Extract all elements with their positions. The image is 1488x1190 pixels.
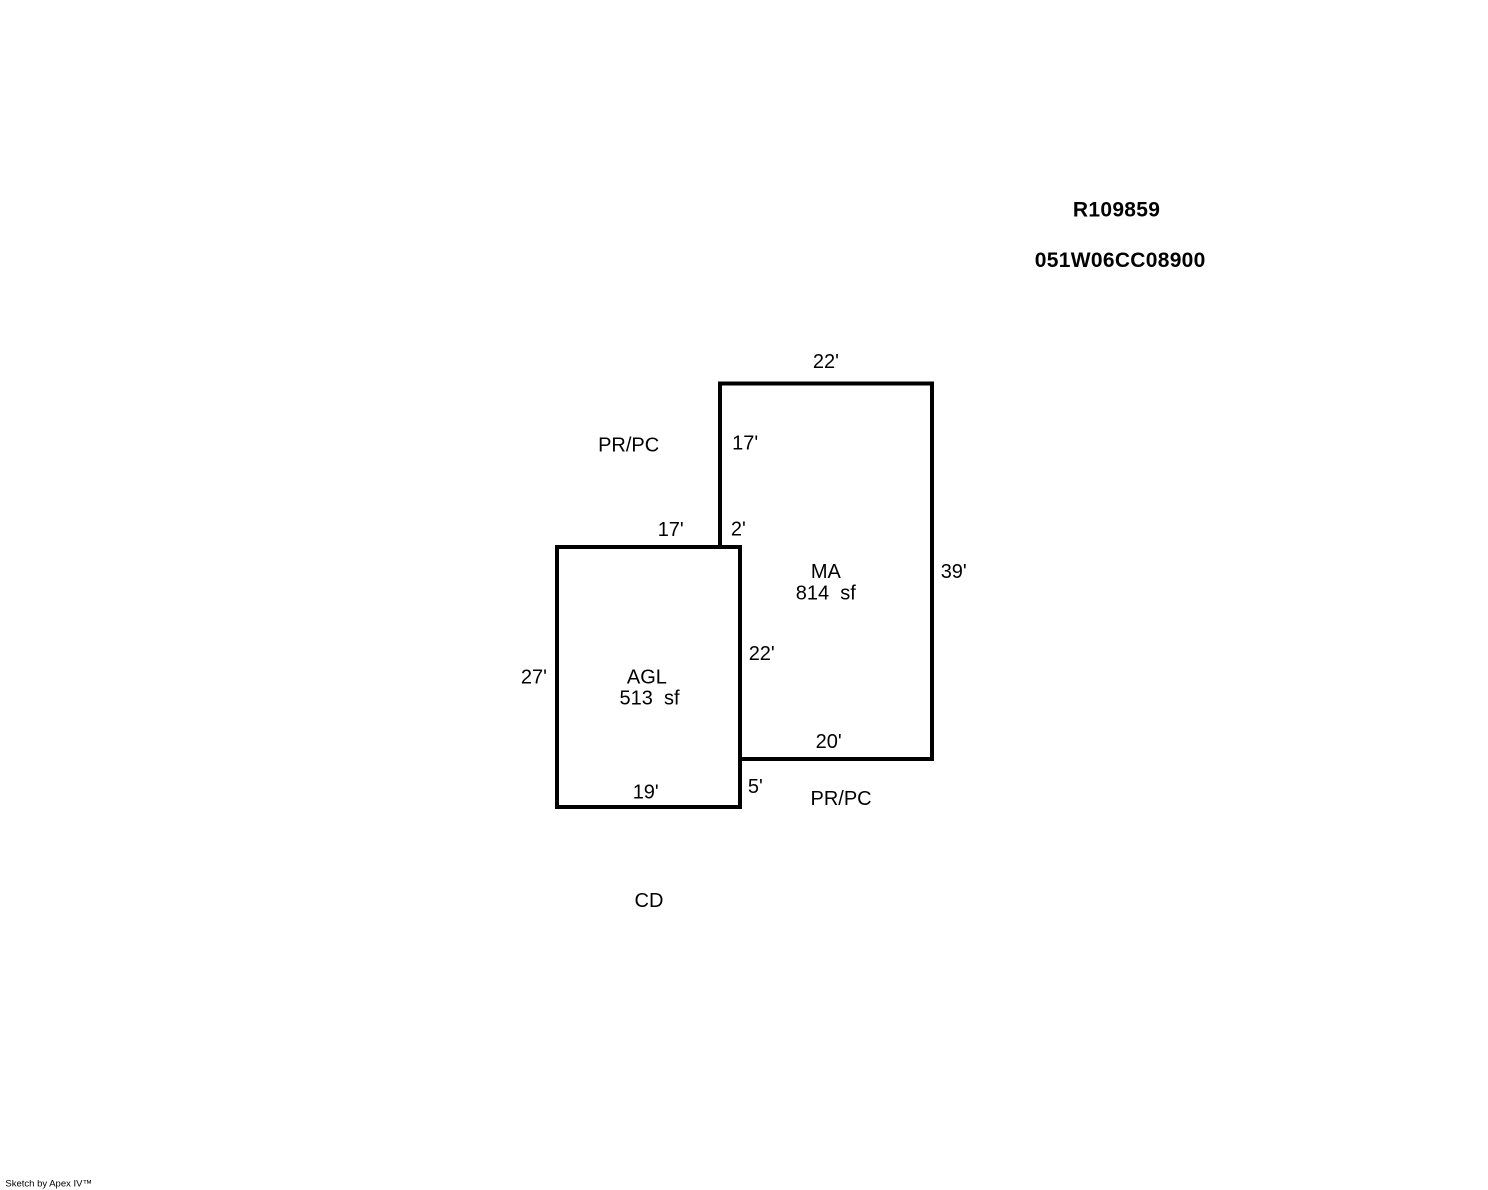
svg-text:19': 19' <box>633 781 659 803</box>
svg-text:17': 17' <box>732 433 758 455</box>
svg-text:17': 17' <box>658 519 684 541</box>
svg-text:814 sf: 814 sf <box>796 582 856 604</box>
svg-text:2': 2' <box>731 518 746 540</box>
svg-text:AGL: AGL <box>627 667 667 689</box>
svg-text:513 sf: 513 sf <box>620 688 680 710</box>
svg-text:5': 5' <box>748 776 763 798</box>
svg-text:20': 20' <box>816 731 842 753</box>
svg-text:27': 27' <box>521 667 547 689</box>
svg-text:MA: MA <box>811 561 842 583</box>
svg-text:Sketch by Apex IV™: Sketch by Apex IV™ <box>5 1178 92 1189</box>
svg-text:PR/PC: PR/PC <box>811 788 872 810</box>
svg-text:22': 22' <box>749 643 775 665</box>
svg-text:PR/PC: PR/PC <box>598 435 659 457</box>
svg-text:R109859: R109859 <box>1073 199 1160 222</box>
svg-text:CD: CD <box>635 890 664 912</box>
svg-text:051W06CC08900: 051W06CC08900 <box>1035 249 1206 272</box>
svg-text:22': 22' <box>813 351 839 373</box>
svg-text:39': 39' <box>941 561 967 583</box>
